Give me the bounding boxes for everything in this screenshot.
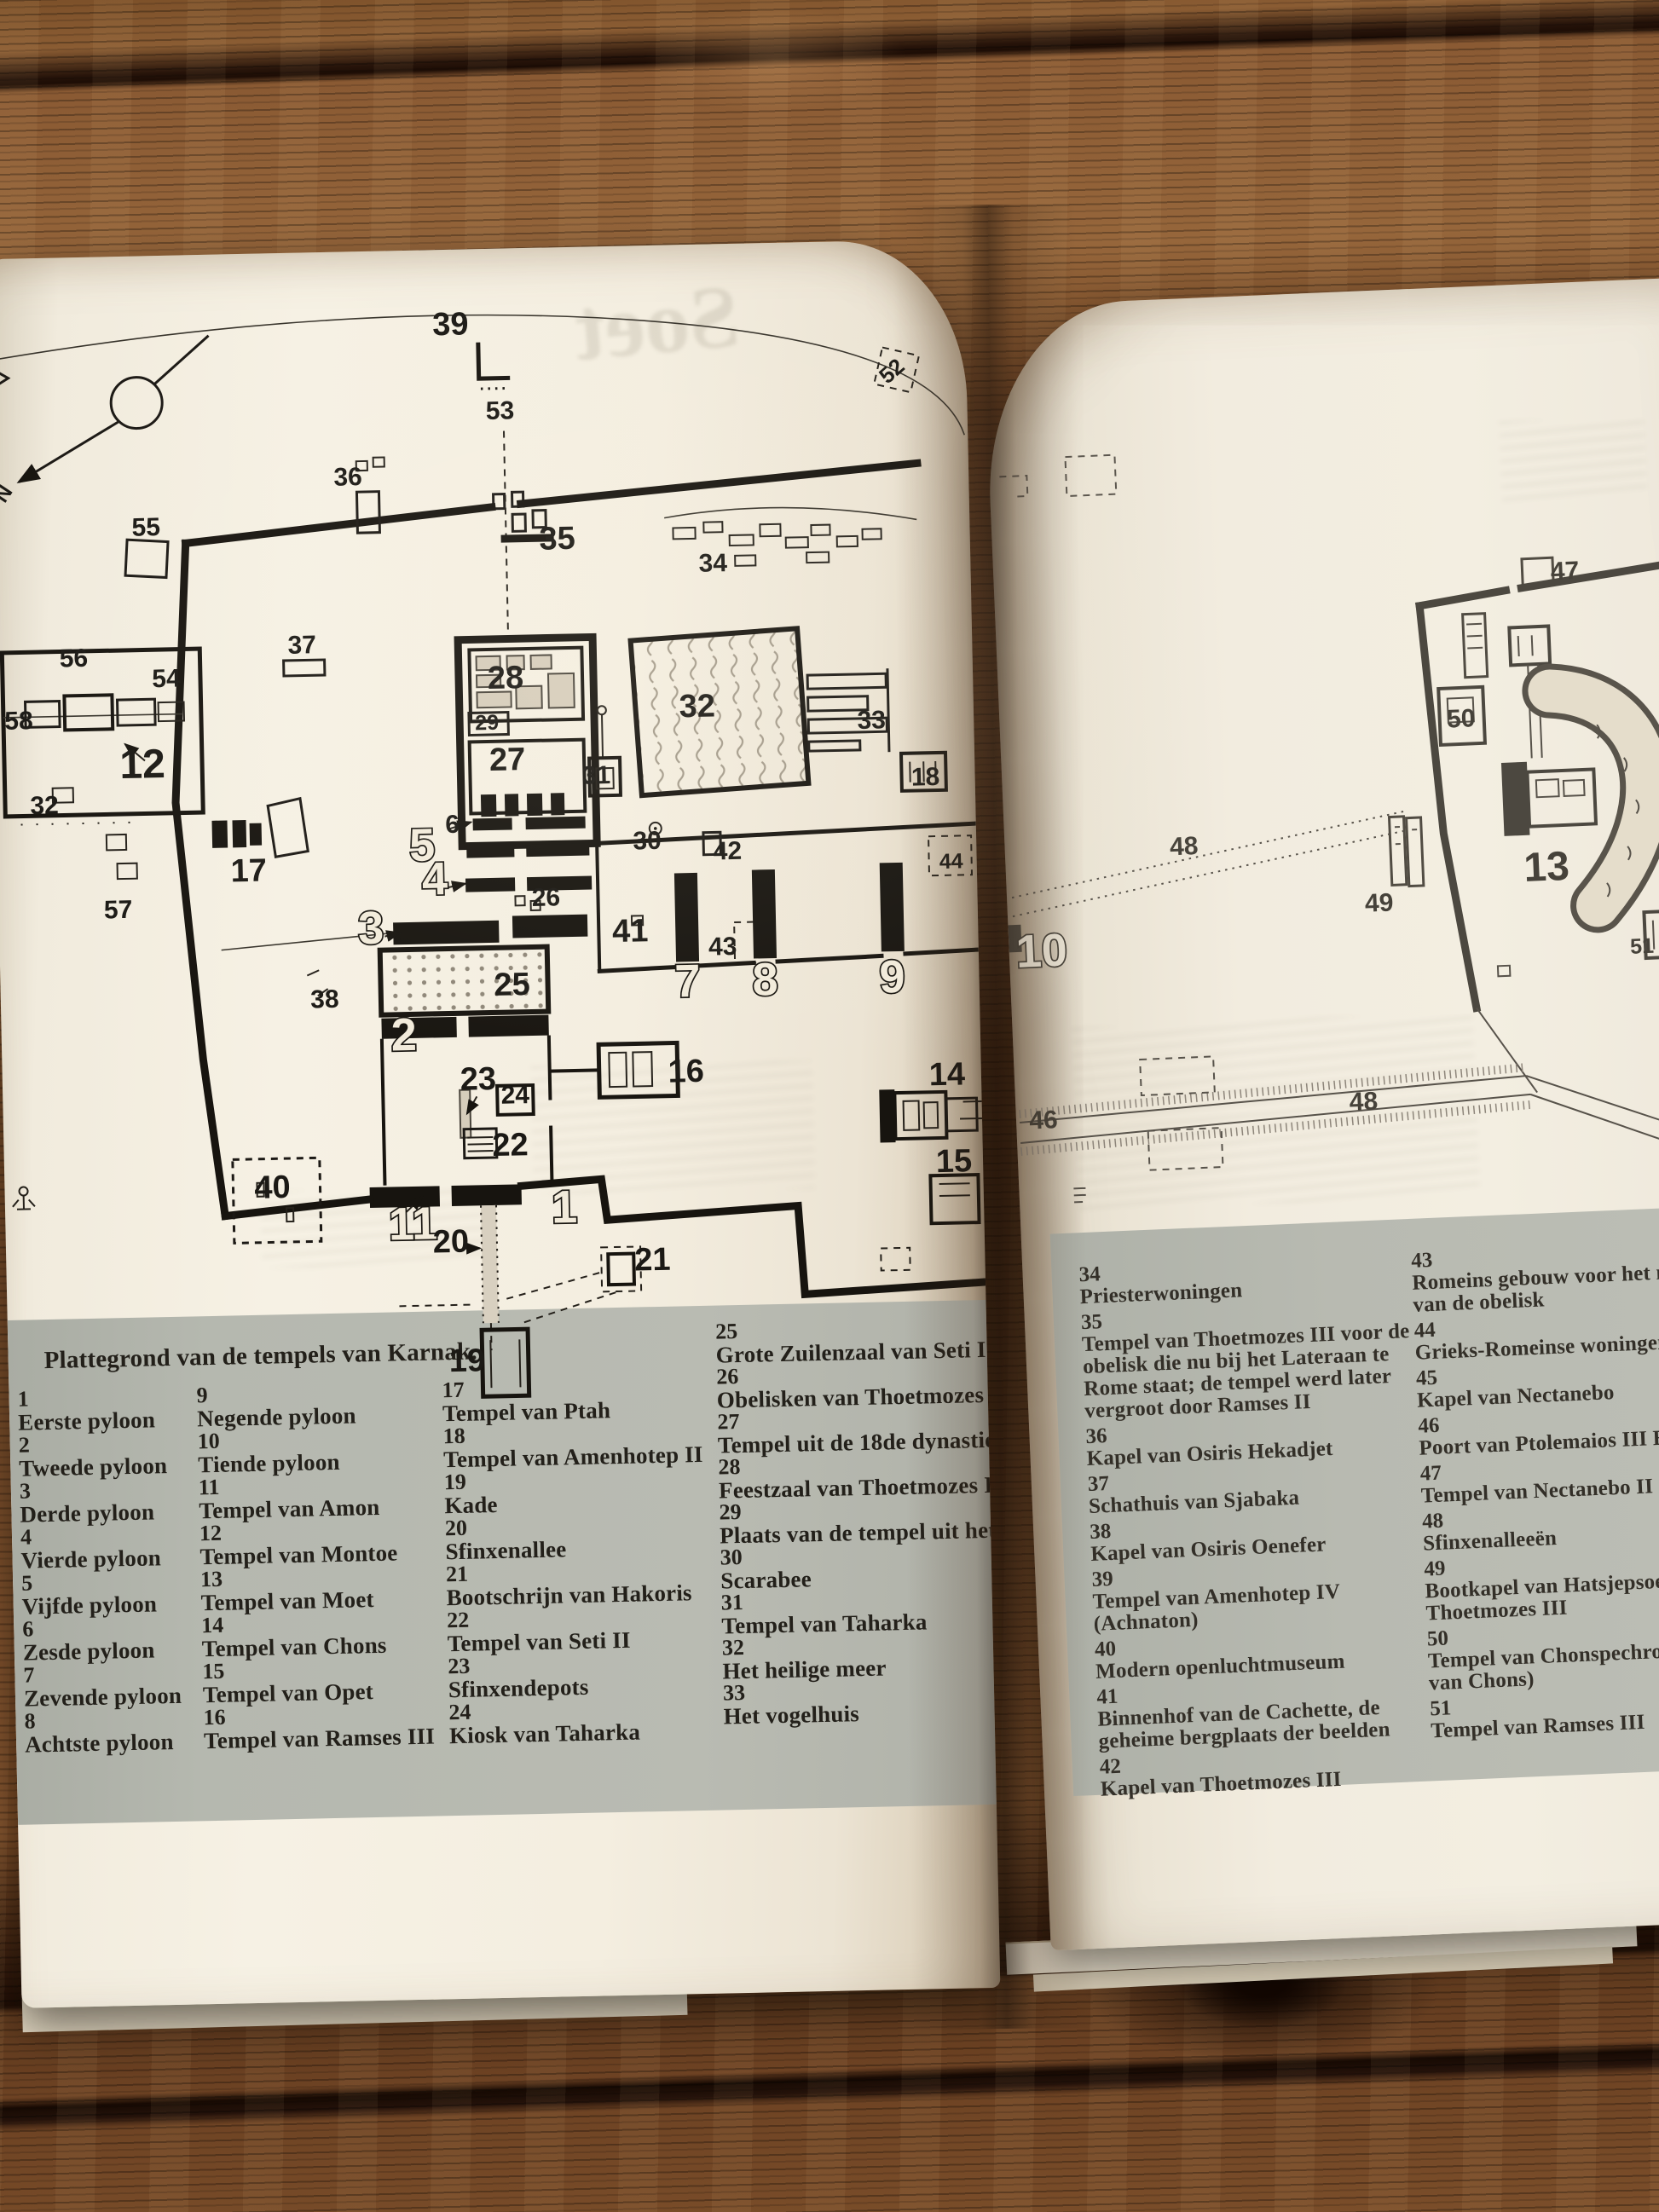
- map-label-40: 40: [254, 1170, 291, 1206]
- svg-text:N: N: [0, 481, 18, 507]
- map-label-51: 51: [1630, 934, 1655, 959]
- map-label-43: 43: [708, 933, 737, 962]
- map-label-8: 8: [752, 954, 778, 1006]
- legend-right: 34Priesterwoningen35Tempel van Thoetmoze…: [1050, 1204, 1659, 1796]
- legend-entry: 10Tiende pyloon: [197, 1424, 445, 1475]
- legend-entry: 19Kade: [443, 1464, 734, 1516]
- small-glyph: [12, 1187, 35, 1210]
- legend-columns: 34Priesterwoningen35Tempel van Thoetmoze…: [1050, 1204, 1659, 1234]
- legend-entry: 43Romeins gebouw voor het neerhalen van …: [1411, 1235, 1659, 1317]
- legend-entry: 20Sfinxenallee: [445, 1510, 736, 1562]
- map-label-18: 18: [911, 763, 940, 792]
- legend-entry: 21Bootschrijn van Hakoris: [446, 1556, 737, 1608]
- map-label-38: 38: [310, 985, 339, 1014]
- map-label-42: 42: [713, 837, 742, 866]
- map-label-25: 25: [494, 967, 530, 1003]
- legend-entry: 6Zesde pyloon: [22, 1613, 198, 1662]
- map-labels-left: 3953363534555654581232571737282927653132…: [0, 296, 976, 1388]
- map-label-9: 9: [879, 951, 905, 1003]
- legend-entry: 17Tempel van Ptah: [442, 1372, 732, 1424]
- priest-houses: [673, 518, 882, 567]
- map-label-50: 50: [1446, 704, 1476, 733]
- map-label-37: 37: [287, 631, 316, 660]
- map-label-48: 48: [1349, 1087, 1379, 1116]
- legend-entry: 24Kiosk van Taharka: [448, 1694, 739, 1746]
- legend-entry: 22Tempel van Seti II: [447, 1602, 737, 1654]
- triangle-mark: [0, 368, 9, 389]
- legend-entry: 14Tempel van Chons: [201, 1608, 449, 1659]
- map-label-32: 32: [679, 688, 715, 725]
- map-label-23: 23: [460, 1061, 496, 1098]
- map-label-16: 16: [668, 1054, 704, 1090]
- map-label-41: 41: [612, 913, 649, 950]
- map-label-52: 52: [874, 353, 910, 389]
- legend-entry-label: Tempel van Ramses III: [204, 1724, 452, 1753]
- legend-columns: 1Eerste pyloon2Tweede pyloon3Derde pyloo…: [8, 1300, 986, 1320]
- legend-entry: 41Binnenhof van de Cachette, de geheime …: [1096, 1672, 1433, 1753]
- photo-of-open-book: Soet Plattegrond van de tempels van Karn…: [0, 0, 1659, 2212]
- map-label-34: 34: [698, 549, 727, 578]
- legend-entry: 9Negende pyloon: [196, 1377, 444, 1429]
- map-label-30: 30: [633, 827, 662, 856]
- show-through-smudge: [531, 1060, 815, 1194]
- legend-entry-label: Kiosk van Taharka: [449, 1718, 739, 1747]
- map-label-39: 39: [432, 306, 469, 343]
- map-label-35: 35: [539, 521, 575, 557]
- map-label-31: 31: [581, 761, 610, 790]
- map-label-32: 32: [30, 792, 59, 821]
- legend-left: Plattegrond van de tempels van Karnak. 1…: [8, 1300, 997, 1825]
- map-label-49: 49: [1364, 888, 1394, 917]
- legend-entry-label: Zevende pyloon: [24, 1684, 199, 1710]
- map-label-20: 20: [432, 1224, 469, 1261]
- map-label-21: 21: [634, 1242, 671, 1279]
- map-label-1: 1: [551, 1181, 577, 1233]
- show-through-smudge: [1499, 416, 1647, 503]
- map-label-24: 24: [500, 1081, 529, 1110]
- map-label-11: 11: [388, 1198, 437, 1250]
- map-label-6: 6: [445, 811, 460, 839]
- map-label-4: 4: [421, 853, 448, 905]
- map-label-17: 17: [230, 852, 267, 889]
- map-label-26: 26: [531, 883, 560, 912]
- map-label-14: 14: [928, 1056, 965, 1093]
- legend-column: 9Negende pyloon10Tiende pyloon11Tempel v…: [196, 1377, 451, 1751]
- legend-entry: 50Tempel van Chonspechrod (het kind van …: [1426, 1614, 1659, 1695]
- map-label-3: 3: [358, 903, 384, 955]
- legend-column: 25Grote Zuilenzaal van Seti I en Ramses …: [715, 1309, 1000, 1725]
- map-label-29: 29: [475, 711, 499, 736]
- legend-entry: 25Grote Zuilenzaal van Seti I en Ramses …: [715, 1309, 1000, 1364]
- map-label-2: 2: [390, 1009, 417, 1061]
- legend-column: 43Romeins gebouw voor het neerhalen van …: [1411, 1235, 1659, 1745]
- legend-entry: 1Eerste pyloon: [17, 1383, 193, 1432]
- legend-title: Plattegrond van de tempels van Karnak.: [43, 1337, 477, 1374]
- legend-entry: 3Derde pyloon: [20, 1475, 195, 1524]
- map-label-47: 47: [1550, 557, 1580, 586]
- legend-entry: 15Tempel van Opet: [202, 1654, 450, 1705]
- map-label-53: 53: [485, 396, 514, 425]
- map-label-56: 56: [59, 644, 88, 673]
- legend-entry: 49Bootkapel van Hatsjepsoet en Thoetmoze…: [1424, 1544, 1659, 1626]
- map-label-27: 27: [488, 742, 525, 778]
- legend-entry: 18Tempel van Amenhotep II: [442, 1418, 733, 1470]
- legend-entry-label: Tempel van Thoetmozes III voor de obelis…: [1082, 1320, 1419, 1423]
- map-label-12: 12: [119, 742, 165, 788]
- legend-column: 17Tempel van Ptah18Tempel van Amenhotep …: [442, 1372, 739, 1746]
- right-page: 34Priesterwoningen35Tempel van Thoetmoze…: [982, 278, 1659, 1950]
- map-label-13: 13: [1523, 844, 1570, 891]
- map-label-46: 46: [1029, 1106, 1059, 1135]
- left-page: Soet Plattegrond van de tempels van Karn…: [0, 239, 1000, 2008]
- map-label-22: 22: [492, 1127, 529, 1164]
- legend-entry: 11Tempel van Amon: [199, 1470, 447, 1521]
- legend-entry-label: Tempel van Amenhotep II: [443, 1442, 733, 1471]
- legend-entry: 8Achtste pyloon: [24, 1705, 199, 1754]
- map-label-55: 55: [131, 513, 160, 542]
- map-label-44: 44: [939, 849, 962, 874]
- show-through-text: Soet: [570, 263, 743, 381]
- legend-column: 1Eerste pyloon2Tweede pyloon3Derde pyloo…: [17, 1383, 199, 1754]
- legend-entry: 13Tempel van Moet: [200, 1562, 448, 1613]
- legend-entry: 2Tweede pyloon: [18, 1429, 194, 1478]
- show-through-smudge: [1072, 1012, 1481, 1211]
- legend-entry: 5Vijfde pyloon: [21, 1567, 197, 1616]
- show-through-smudge: [261, 1187, 484, 1268]
- legend-entry: 35Tempel van Thoetmozes III voor de obel…: [1080, 1297, 1419, 1423]
- legend-entry: 7Zevende pyloon: [23, 1659, 199, 1708]
- map-label-10: 10: [1014, 925, 1068, 978]
- map-label-7: 7: [674, 956, 701, 1008]
- legend-entry: 23Sfinxendepots: [448, 1648, 738, 1700]
- map-label-5: 5: [408, 819, 435, 871]
- map-label-33: 33: [857, 706, 886, 735]
- legend-entry: 39Tempel van Amenhotep IV (Achnaton): [1091, 1555, 1428, 1636]
- map-label-58: 58: [4, 707, 33, 736]
- map-label-28: 28: [487, 660, 523, 696]
- map-label-54: 54: [152, 665, 181, 694]
- legend-entry: 12Tempel van Montoe: [199, 1516, 448, 1567]
- legend-entry: 16Tempel van Ramses III: [203, 1700, 451, 1751]
- map-label-36: 36: [333, 463, 362, 492]
- legend-column: 34Priesterwoningen35Tempel van Thoetmoze…: [1078, 1250, 1435, 1804]
- legend-entry: 4Vierde pyloon: [20, 1521, 196, 1570]
- map-label-48: 48: [1169, 832, 1199, 861]
- map-label-15: 15: [935, 1143, 972, 1180]
- legend-entry-label: Achtste pyloon: [25, 1730, 200, 1756]
- compass-icon: N: [0, 336, 212, 507]
- map-label-57: 57: [104, 896, 133, 925]
- map-labels-right: 475013484910514648: [1000, 554, 1659, 1135]
